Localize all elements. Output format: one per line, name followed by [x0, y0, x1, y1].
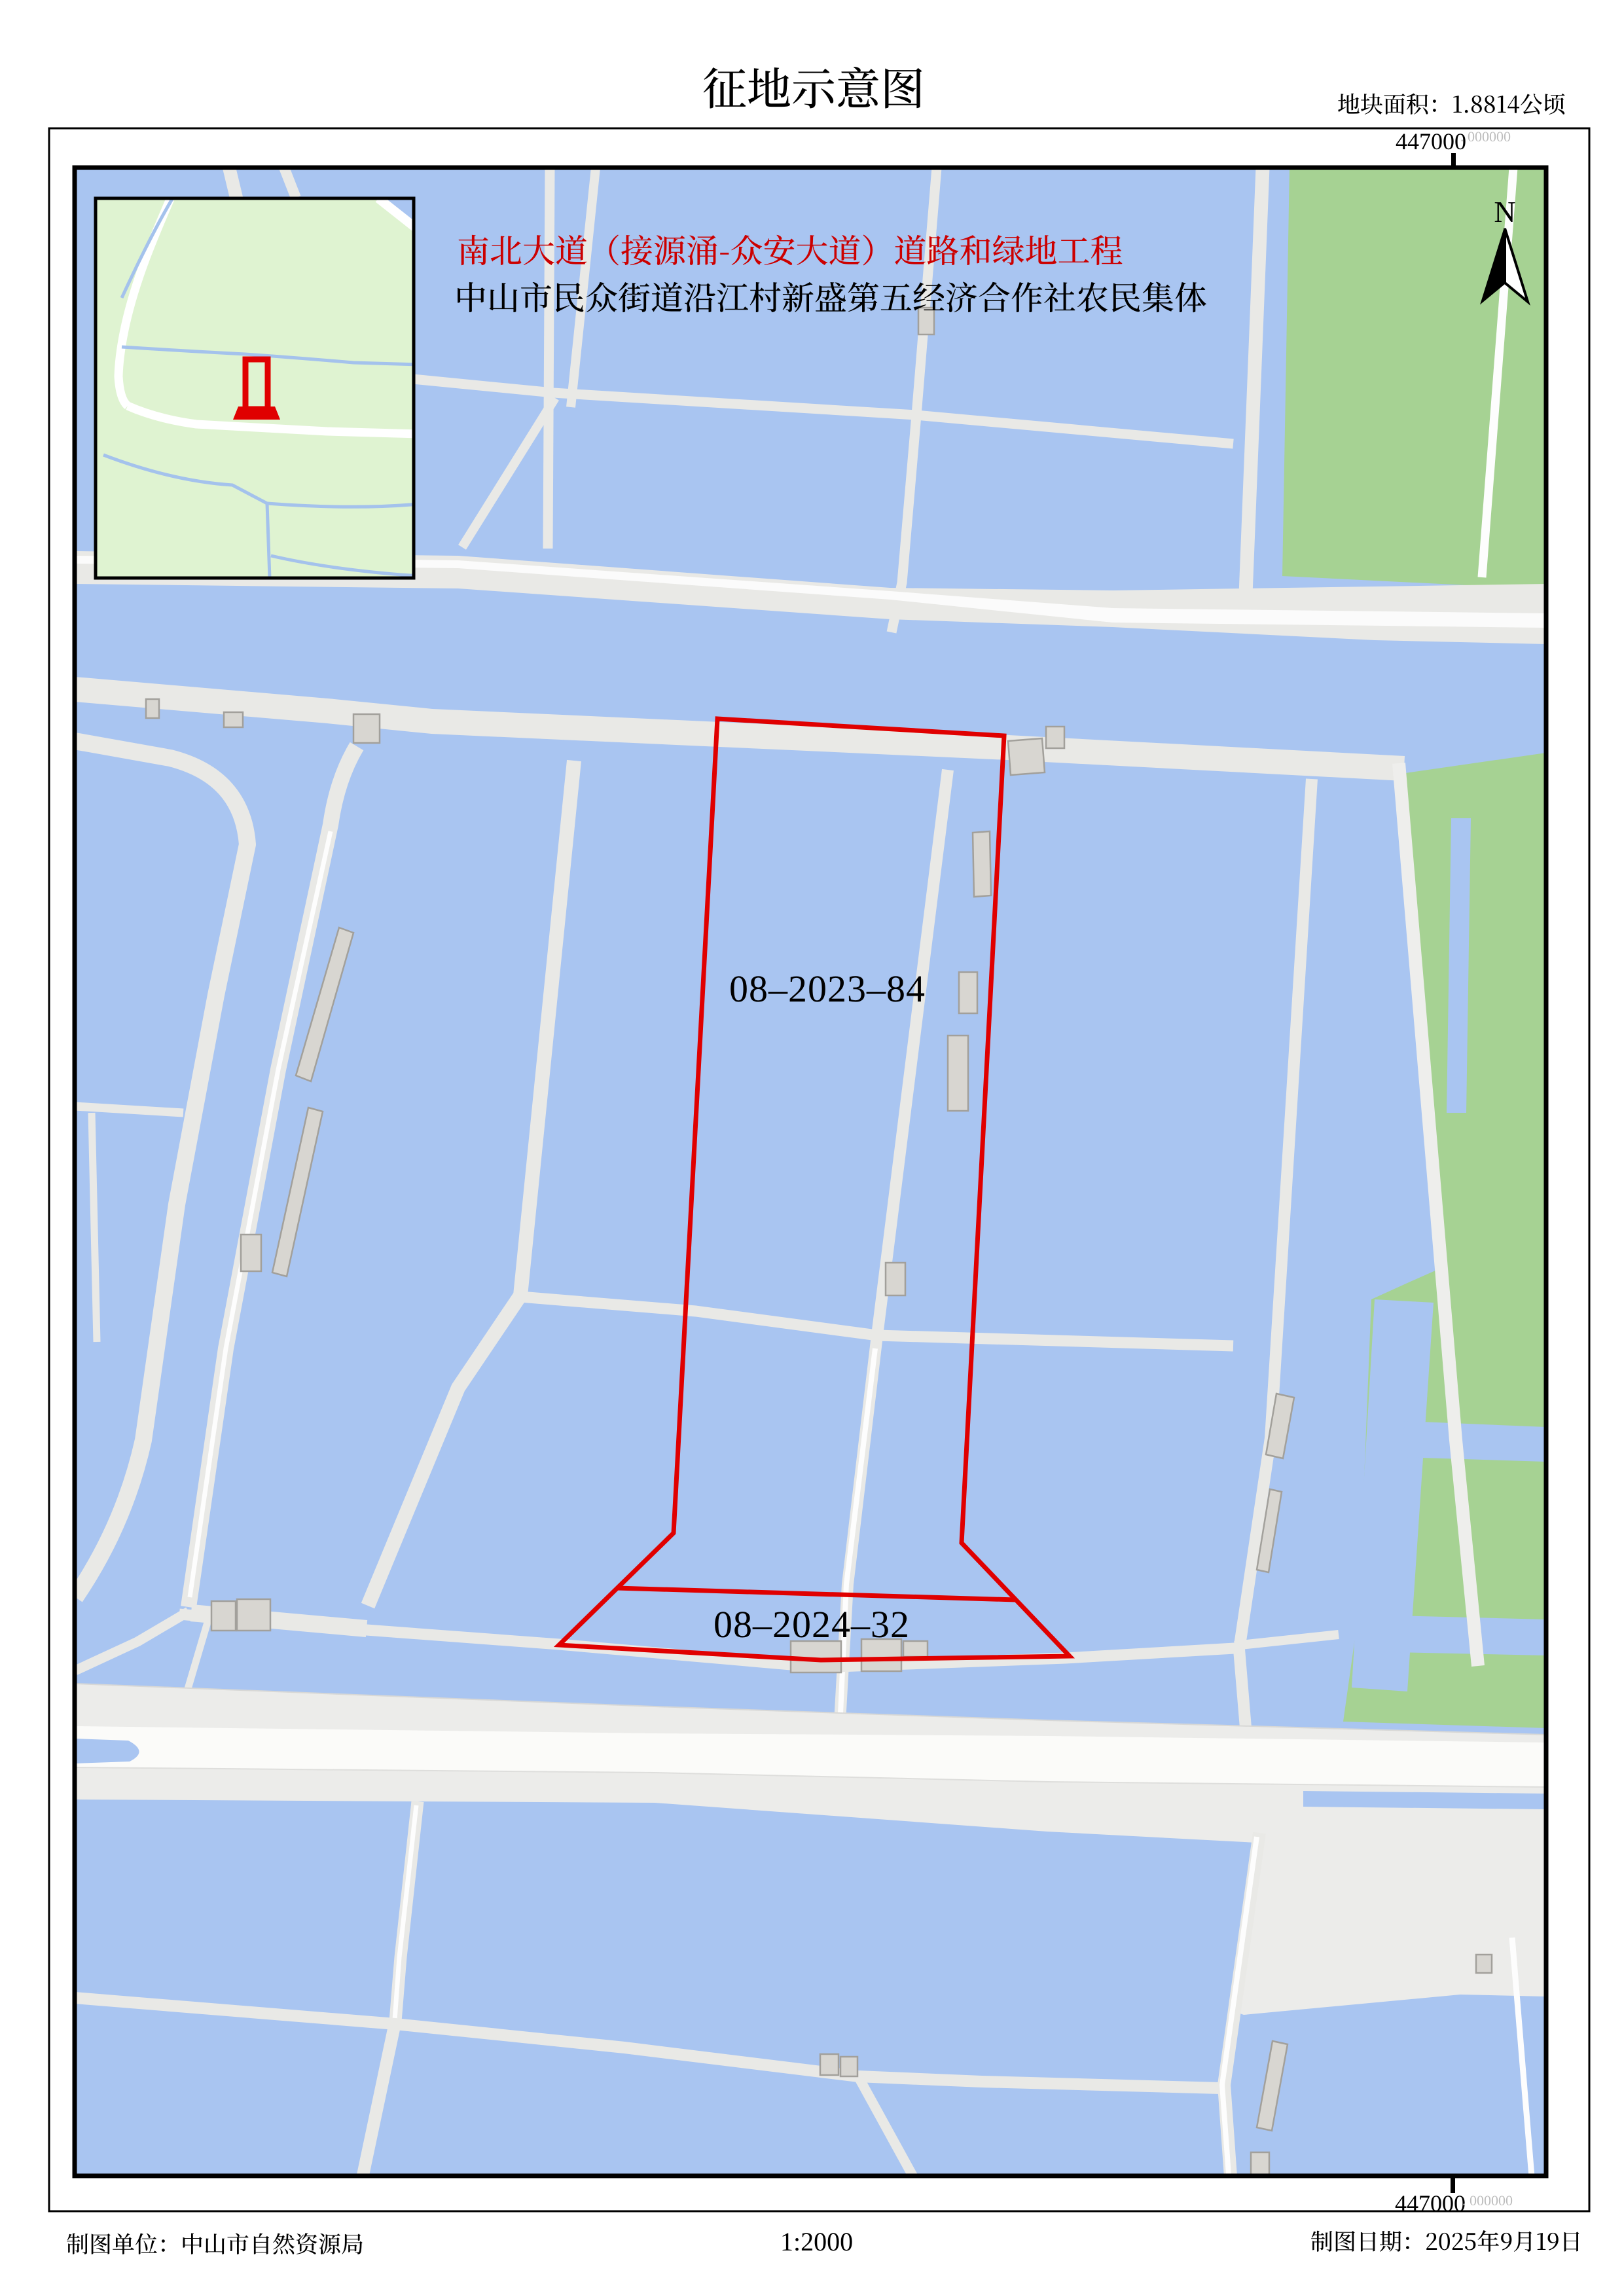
svg-text:08–2023–84: 08–2023–84	[729, 967, 926, 1010]
svg-text:. 000000: . 000000	[1460, 128, 1511, 145]
svg-text:. 000000: . 000000	[1462, 2192, 1513, 2209]
svg-text:447000: 447000	[1396, 128, 1466, 154]
svg-text:447000: 447000	[1395, 2190, 1466, 2216]
svg-text:1:2000: 1:2000	[780, 2227, 853, 2256]
svg-text:08–2024–32: 08–2024–32	[713, 1603, 910, 1646]
svg-text:N: N	[1494, 195, 1515, 228]
